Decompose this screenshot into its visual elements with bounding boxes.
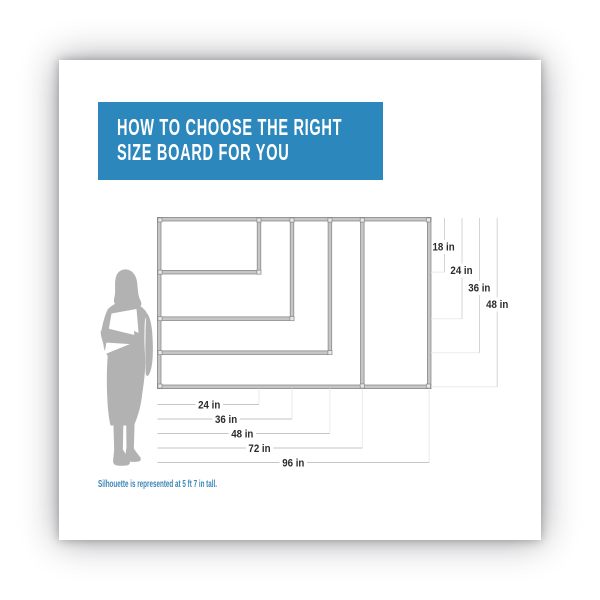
svg-text:48 in: 48 in: [486, 300, 508, 312]
svg-text:24 in: 24 in: [198, 400, 220, 412]
svg-text:96 in: 96 in: [282, 458, 304, 470]
svg-text:36 in: 36 in: [468, 283, 490, 295]
svg-text:18 in: 18 in: [433, 242, 455, 254]
svg-text:24 in: 24 in: [450, 266, 472, 278]
svg-text:72 in: 72 in: [248, 444, 270, 456]
svg-text:48 in: 48 in: [231, 429, 253, 441]
svg-text:36 in: 36 in: [215, 415, 237, 427]
